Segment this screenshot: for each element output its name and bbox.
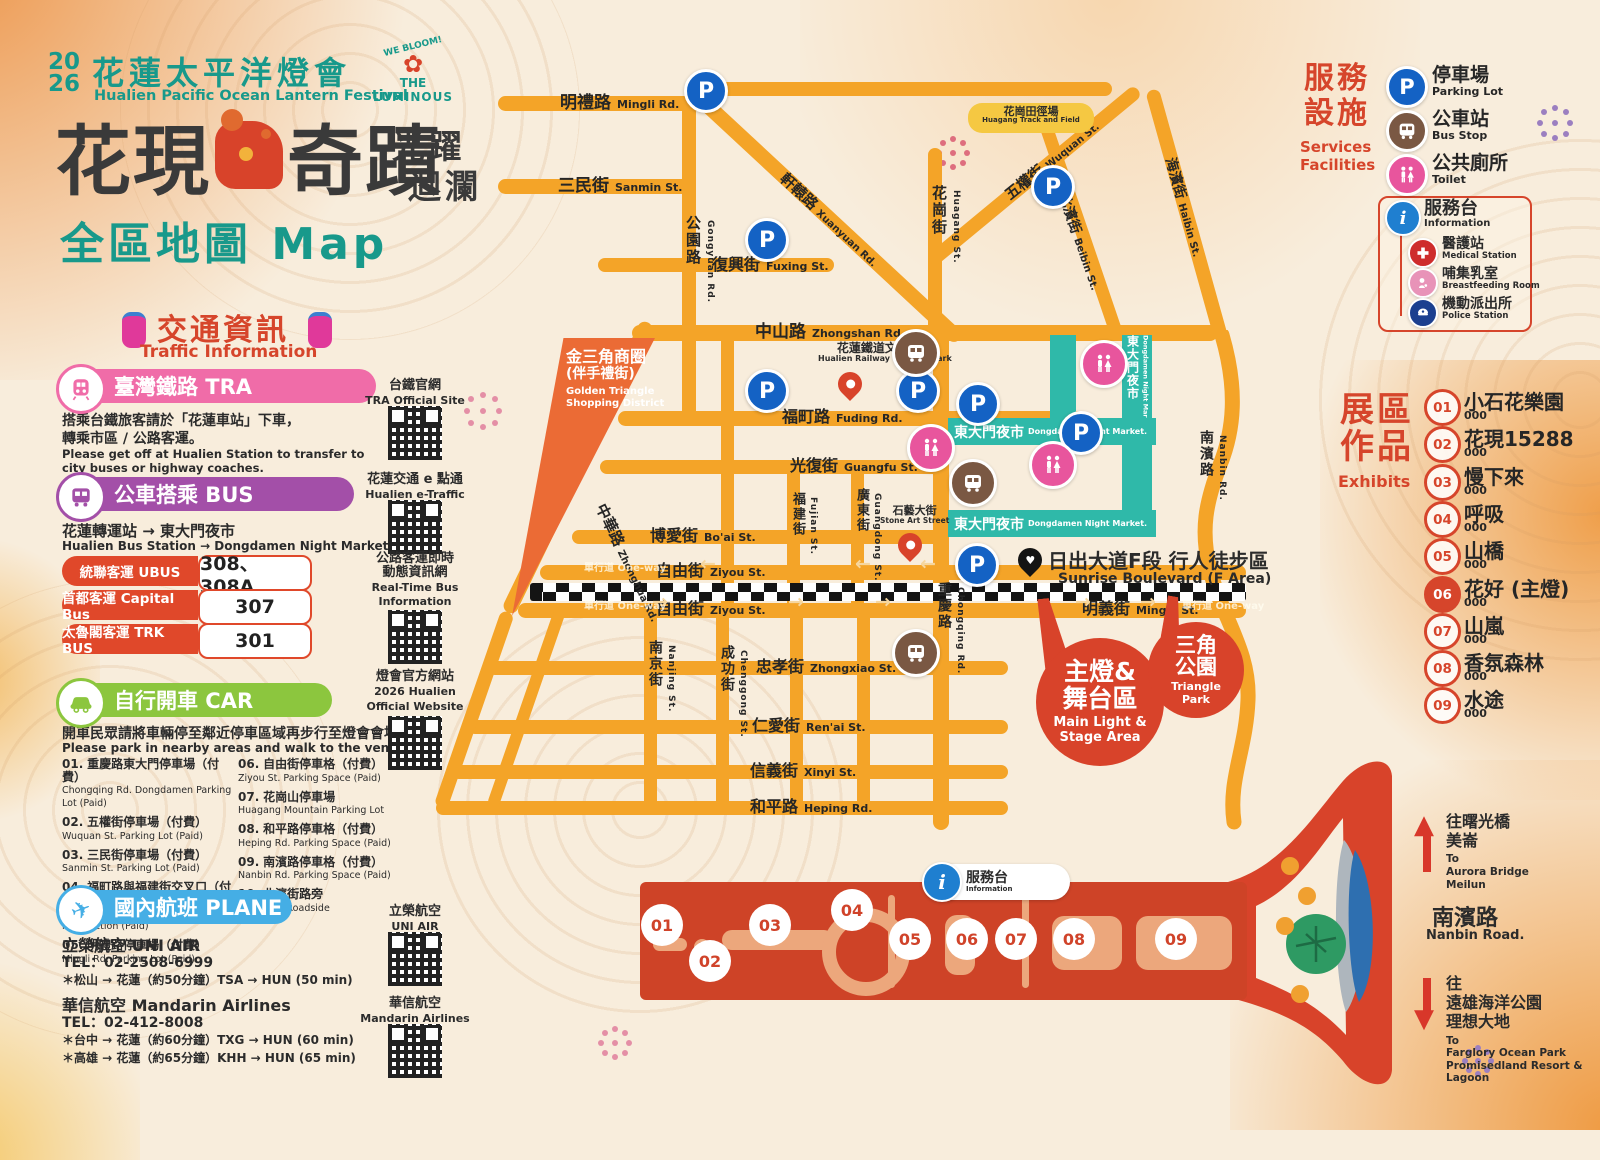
dir-en: To — [1446, 1035, 1600, 1048]
train-icon — [56, 364, 106, 414]
bus-route-row-label: 首都客運 Capital Bus — [62, 590, 198, 620]
info-legend-line — [1400, 232, 1402, 316]
callout-zh2: 舞台區 — [1062, 686, 1137, 712]
dir-zh: 遠雄海洋公園 — [1446, 993, 1600, 1012]
road-label-haibin: 海濱街Haibin St. — [1161, 155, 1208, 259]
parking-zh: 三民街停車場（付費） — [87, 848, 207, 862]
road-label-nanbin: 南濱路Nanbin Rd. — [1196, 430, 1277, 501]
qr-label-zh: 台鐵官網 — [389, 378, 441, 393]
bus-badge: 公車搭乘 BUS — [70, 477, 354, 511]
legend-breastfeeding: 哺集乳室 Breastfeeding Room — [1442, 267, 1540, 291]
qr-label-en2: Information — [379, 595, 452, 608]
legend-en: Toilet — [1432, 173, 1508, 186]
bus-stop-icon — [949, 459, 997, 507]
bus-row-label: 統聯客運 UBUS — [80, 561, 181, 581]
exhibit-number: 04 — [1424, 501, 1461, 538]
road-xinyi — [452, 765, 1008, 779]
bus-badge-label: 公車搭乘 BUS — [114, 479, 254, 509]
firework-burst — [1552, 120, 1558, 126]
parking-zh: 花崗山停車場 — [263, 790, 335, 804]
night-market-zh: 東大門夜市 — [954, 422, 1024, 442]
map-title-en: Map — [271, 219, 388, 270]
parking-num: 09. — [238, 855, 259, 869]
triangle-park-callout: 三角 公園 Triangle Park — [1148, 622, 1244, 718]
parking-num: 07. — [238, 790, 259, 804]
exhibit-number: 03 — [1424, 464, 1461, 501]
airline-route: ＊台中 → 花蓮（約60分鐘）TXG → HUN (60 min) — [62, 1031, 354, 1048]
toilet-icon — [1029, 441, 1077, 489]
en: Ziyou St. — [710, 566, 766, 579]
parking-item: 06. 自由街停車格（付費）Ziyou St. Parking Space (P… — [238, 758, 410, 784]
arrow-down: ▼ — [1414, 1006, 1434, 1032]
legend-en: Bus Stop — [1432, 129, 1489, 142]
dir-en: Promisedland Resort & Lagoon — [1446, 1060, 1600, 1085]
en: Zhongxiao St. — [810, 662, 896, 675]
bus-row-label: 太魯閣客運 TRK BUS — [62, 621, 198, 657]
road-label-zhongshan: 中山路Zhongshan Rd. — [755, 317, 905, 342]
callout-en1: Main Light & — [1053, 715, 1146, 730]
sunrise-zh: 日出大道F段 行人徒步區 — [1048, 545, 1269, 574]
parking-en: Chongqing Rd. Dongdamen Parking Lot (Pai… — [62, 785, 231, 809]
dir-en: Aurora Bridge — [1446, 866, 1529, 879]
parking-icon: P — [1386, 66, 1428, 108]
legend-en: Breastfeeding Room — [1442, 281, 1540, 291]
legend-en: Parking Lot — [1432, 85, 1503, 98]
parking-icon: P — [745, 218, 789, 262]
stone-art-label: 石藝大街 Stone Art Street — [880, 505, 949, 525]
road-label-heping: 和平路Heping Rd. — [750, 793, 872, 817]
area-marker: 03 — [749, 904, 791, 946]
en: Heping Rd. — [804, 802, 872, 815]
night-market-bar: 東大門夜市 Dongdamen Night Market. — [948, 510, 1156, 537]
legend-zh: 機動派出所 — [1442, 297, 1512, 311]
parking-item: 07. 花崗山停車場Huagang Mountain Parking Lot — [238, 791, 410, 817]
road-label-boai: 博愛街Bo'ai St. — [650, 522, 756, 546]
breastfeeding-icon — [1408, 268, 1438, 298]
legend-bus-stop: 公車站 Bus Stop — [1432, 110, 1489, 142]
parking-item: 09. 南濱路停車格（付費）Nanbin Rd. Parking Space (… — [238, 856, 410, 882]
en: Haibin St. — [1176, 202, 1202, 258]
oneway-label: 單行道 One-way — [1182, 597, 1264, 612]
parking-icon: P — [1031, 165, 1075, 209]
oneway-arrow-right: → — [652, 591, 668, 613]
location-pin-icon — [833, 367, 867, 401]
zh: 福町路 — [782, 407, 830, 426]
dir-en: Meilun — [1446, 879, 1529, 892]
zh: 南京街 — [645, 640, 665, 712]
exhibit-number: 02 — [1424, 426, 1461, 463]
parking-item: 03. 三民街停車場（付費）Sanmin St. Parking Lot (Pa… — [62, 849, 234, 875]
road-top — [690, 82, 1112, 96]
oneway-arrow-left: ← — [920, 553, 936, 575]
tra-body-en2: city buses or highway coaches. — [62, 461, 264, 475]
golden-triangle-en1: Golden Triangle — [566, 386, 664, 398]
qr-label-zh: 燈會官方網站 — [376, 669, 454, 684]
bus-icon — [56, 472, 106, 522]
qr-code-mandarin — [388, 1024, 442, 1078]
legend-toilet: 公共廁所 Toilet — [1432, 154, 1508, 186]
callout-en1: Triangle — [1171, 680, 1221, 693]
exhibits-title-en: Exhibits — [1338, 472, 1410, 491]
legend-en: Medical Station — [1442, 251, 1517, 261]
en: Guangfu St. — [844, 461, 918, 474]
en: Bo'ai St. — [704, 531, 756, 544]
area-marker: 02 — [689, 940, 731, 982]
main-light-callout: 主燈& 舞台區 Main Light & Stage Area — [1036, 638, 1164, 766]
year-badge: 20 26 — [48, 52, 80, 96]
services-title-en2: Facilities — [1300, 156, 1375, 174]
en: Zhongshan Rd. — [812, 327, 905, 340]
exhibits-title-zh: 展區 作品 — [1340, 392, 1414, 467]
night-market-zh: 東大門夜市 — [954, 514, 1024, 534]
legend-zh: 停車場 — [1432, 66, 1503, 85]
parking-zh: 和平路停車格（付費） — [263, 822, 383, 836]
zh: 成功街 — [717, 645, 737, 738]
parking-icon: P — [745, 369, 789, 413]
dir-en: To — [1446, 853, 1529, 866]
parking-icon: P — [956, 382, 1000, 426]
legend-zh: 服務台 — [1424, 200, 1490, 218]
road-label-chongqing: 重慶路Chongqing Rd. — [934, 582, 1015, 674]
parking-num: 02. — [62, 815, 83, 829]
nanbin-road-en: Nanbin Road. — [1426, 928, 1524, 943]
pin-dot — [906, 541, 915, 550]
parking-num: 06. — [238, 757, 259, 771]
parking-en: Wuquan St. Parking Lot (Paid) — [62, 831, 203, 842]
area-marker: 08 — [1053, 918, 1095, 960]
road-label-fuding: 福町路Fuding Rd. — [782, 403, 903, 427]
toilet-icon — [1386, 154, 1428, 196]
exhibits-title-zh2: 作品 — [1340, 429, 1414, 466]
legend-medical: 醫護站 Medical Station — [1442, 237, 1517, 261]
en: Sanmin St. — [615, 181, 682, 194]
strip-info-en: Information — [966, 885, 1012, 893]
zh: 南濱路 — [1196, 430, 1216, 501]
zh: 和平路 — [750, 797, 798, 816]
dir-en: Farglory Ocean Park — [1446, 1047, 1600, 1060]
heart-glyph: ♥ — [1025, 554, 1035, 567]
legend-parking: 停車場 Parking Lot — [1432, 66, 1503, 98]
zh: 明禮路 — [560, 93, 611, 113]
parking-en: Sanmin St. Parking Lot (Paid) — [62, 863, 200, 874]
exhibit-sub: 000 — [1464, 596, 1487, 609]
night-market-en: Dongdamen Night Market. — [1028, 519, 1147, 528]
airline-route: ＊松山 → 花蓮（約50分鐘）TSA → HUN (50 min) — [62, 971, 353, 988]
stone-art-en: Stone Art Street — [880, 517, 949, 525]
qr-label: 華信航空Mandarin Airlines — [330, 992, 500, 1026]
legend-zh: 醫護站 — [1442, 237, 1517, 251]
zh: 福建街 — [788, 492, 807, 555]
traffic-title-en: Traffic Information — [140, 342, 317, 362]
info-icon: i — [922, 862, 962, 902]
road-label-xinyi: 信義街Xinyi St. — [750, 757, 856, 781]
oneway-arrow-right: → — [1140, 591, 1156, 613]
parking-num: 03. — [62, 848, 83, 862]
oneway-arrow-left: ← — [855, 553, 871, 575]
qr-code-etraffic — [388, 500, 442, 554]
oneway-arrow-right: → — [875, 591, 891, 613]
area-marker: 01 — [641, 904, 683, 946]
firework-burst — [480, 408, 486, 414]
car-note-en: Please park in nearby areas and walk to … — [62, 741, 410, 755]
parking-zh: 自由街停車格（付費） — [263, 757, 383, 771]
logo-the: THE — [368, 76, 458, 90]
bus-stop-icon — [1386, 110, 1428, 152]
info-icon: i — [1385, 200, 1421, 236]
airline-route: ＊高雄 → 花蓮（約65分鐘）KHH → HUN (65 min) — [62, 1049, 356, 1066]
services-title-zh1: 服務 — [1304, 62, 1370, 97]
oneway-arrow-right: → — [788, 591, 804, 613]
dir-zh: 美崙 — [1446, 831, 1529, 850]
strip-info-zh: 服務台 — [966, 871, 1012, 885]
en: One-way — [617, 563, 666, 574]
year-bottom: 26 — [48, 74, 80, 96]
qr-label-zh: 花蓮交通 e 點通 — [367, 472, 463, 487]
firework-burst — [612, 1040, 618, 1046]
oneway-arrow-left: ← — [700, 553, 716, 575]
car-badge: 自行開車 CAR — [70, 683, 332, 717]
qr-label: 花蓮交通 e 點通Hualien e-Traffic — [330, 468, 500, 502]
qr-code-official — [388, 716, 442, 770]
services-title-zh: 服務 設施 — [1304, 62, 1370, 131]
qr-code-bus-info — [388, 610, 442, 664]
parking-num: 08. — [238, 822, 259, 836]
en: Beibin St. — [1071, 237, 1099, 292]
parking-zh: 五權街停車場（付費） — [87, 815, 207, 829]
slogan-left: 花現 — [55, 100, 211, 210]
en: Ren'ai St. — [806, 721, 866, 734]
area-marker: 07 — [995, 918, 1037, 960]
exhibit-number-main: 06 — [1424, 576, 1461, 613]
parking-en: Ziyou St. Parking Space (Paid) — [238, 773, 381, 784]
car-icon — [56, 678, 106, 728]
info-glyph: i — [938, 870, 946, 894]
sunrise-en: Sunrise Boulevard (F Area) — [1058, 571, 1271, 587]
bus-route-zh: 花蓮轉運站 → 東大門夜市 — [62, 520, 235, 541]
en: Huagang St. — [951, 190, 961, 264]
golden-triangle-zh1: 金三角商圈 — [566, 348, 664, 366]
bus-row-value: 301 — [235, 630, 275, 652]
parking-en: Heping Rd. Parking Space (Paid) — [238, 838, 391, 849]
tra-body-en1: Please get off at Hualien Station to tra… — [62, 447, 364, 461]
zh: 博愛街 — [650, 526, 698, 545]
direction-aurora: 往曙光橋 美崙 To Aurora Bridge Meilun — [1446, 812, 1529, 891]
callout-zh1: 三角 — [1175, 634, 1217, 656]
toilet-icon — [1080, 340, 1128, 388]
firework-burst — [950, 150, 956, 156]
qr-code-tra — [388, 406, 442, 460]
oneway-arrow-right: → — [1075, 591, 1091, 613]
en: Fuding Rd. — [836, 412, 903, 425]
callout-zh1: 主燈& — [1064, 659, 1136, 685]
zh: 單行道 — [1182, 601, 1212, 612]
golden-triangle-zh2: (伴手禮街) — [566, 366, 664, 382]
qr-label-zh: 公路客運即時 — [376, 551, 454, 566]
en: Fuxing St. — [766, 260, 829, 273]
zh: 花崗街 — [929, 185, 950, 264]
qr-label: 台鐵官網TRA Official Site — [330, 374, 500, 408]
tra-body-zh1: 搭乘台鐵旅客請於「花蓮車站」下車， — [62, 410, 300, 430]
parking-en: Huagang Mountain Parking Lot — [238, 805, 384, 816]
coastal-park-art — [1228, 748, 1413, 1098]
en: Nanbin Rd. — [1217, 435, 1227, 501]
qr-label: 燈會官方網站2026 HualienOfficial Website — [330, 670, 500, 715]
legend-zh: 哺集乳室 — [1442, 267, 1540, 281]
plane-icon: ✈ — [56, 885, 106, 935]
golden-triangle-label: 金三角商圈 (伴手禮街) Golden Triangle Shopping Di… — [566, 348, 664, 409]
oneway-label: 單行道 One-way — [584, 559, 666, 574]
exhibit-number: 07 — [1424, 613, 1461, 650]
qr-code-uniair — [388, 932, 442, 986]
police-icon — [1408, 298, 1438, 328]
bus-route-row-label: 統聯客運 UBUS — [62, 556, 198, 586]
horse-flower-dot — [221, 109, 243, 131]
parking-zh: 重慶路東大門停車場（付費） — [62, 757, 219, 784]
legend-zh: 公車站 — [1432, 110, 1489, 129]
parking-en: Nanbin Rd. Parking Space (Paid) — [238, 870, 391, 881]
zh: 公園路 — [683, 215, 704, 303]
legend-en: Police Station — [1442, 311, 1512, 321]
main-slogan: 花現 奇蹟 — [55, 100, 443, 210]
exhibit-sub: 000 — [1464, 521, 1487, 534]
airline-tel: TEL：02-2508-6999 — [62, 952, 213, 972]
dir-zh: 往曙光橋 — [1446, 812, 1529, 831]
road-label-sanmin: 三民街Sanmin St. — [558, 171, 682, 196]
road-grid-v — [857, 603, 870, 810]
qr-label-en: Real-Time Bus — [372, 581, 459, 594]
exhibit-sub: 000 — [1464, 670, 1487, 683]
exhibit-sub: 000 — [1464, 484, 1487, 497]
zh: 三民街 — [558, 176, 609, 196]
track-field-en: Huagang Track and Field — [968, 117, 1094, 124]
qr-label-zh: 立榮航空 — [389, 904, 441, 919]
info-glyph: i — [1400, 208, 1407, 229]
services-title-en1: Services — [1300, 138, 1375, 156]
legend-zh: 公共廁所 — [1432, 154, 1508, 173]
callout-zh2: 公園 — [1175, 656, 1217, 678]
callout-en2: Stage Area — [1059, 730, 1140, 745]
exhibit-number: 09 — [1424, 687, 1461, 724]
en: Mingli Rd. — [617, 98, 679, 111]
legend-police: 機動派出所 Police Station — [1442, 297, 1512, 321]
parking-item: 08. 和平路停車格（付費）Heping Rd. Parking Space (… — [238, 823, 410, 849]
plane-glyph: ✈ — [67, 893, 95, 926]
bus-row-value: 307 — [235, 596, 275, 618]
area-marker: 09 — [1155, 918, 1197, 960]
slogan-side-2: 迴瀾 — [408, 160, 482, 208]
arrow-up-shaft — [1423, 836, 1431, 872]
bus-route-row-value: 301 — [198, 623, 312, 659]
bus-stop-icon — [892, 629, 940, 677]
area-marker: 06 — [946, 918, 988, 960]
map-title: 全區地圖 Map — [60, 208, 388, 272]
dir-zh: 理想大地 — [1446, 1012, 1600, 1031]
exhibit-sub: 000 — [1464, 446, 1487, 459]
exhibit-sub: 000 — [1464, 558, 1487, 571]
qr-label: 立榮航空UNI AIR — [330, 900, 500, 934]
pin-dot — [846, 380, 855, 389]
car-badge-label: 自行開車 CAR — [114, 685, 253, 715]
en: Ziyou St. — [710, 604, 766, 617]
exhibit-sub: 000 — [1464, 707, 1487, 720]
parking-item: 02. 五權街停車場（付費）Wuquan St. Parking Lot (Pa… — [62, 816, 234, 842]
road-label-huagang: 花崗街Huagang St. — [929, 185, 1013, 264]
road-label-mingli: 明禮路Mingli Rd. — [560, 88, 679, 113]
exhibit-number: 08 — [1424, 650, 1461, 687]
exhibits-title-zh1: 展區 — [1340, 392, 1414, 429]
medical-icon — [1408, 238, 1438, 268]
toilet-icon — [907, 424, 955, 472]
night-market-stub — [1050, 335, 1076, 420]
exhibit-number: 01 — [1424, 389, 1461, 426]
en: Fujian St. — [808, 497, 818, 555]
legend-information: 服務台 Information — [1424, 200, 1490, 229]
qr-label-en: 2026 Hualien — [374, 685, 456, 698]
parking-icon: P — [684, 69, 728, 113]
zh: 海濱街 — [1162, 156, 1189, 201]
zh: 中山路 — [755, 322, 806, 342]
qr-label-en2: Official Website — [366, 700, 463, 713]
bus-row-label: 首都客運 Capital Bus — [62, 587, 198, 623]
en: Xinyi St. — [804, 766, 856, 779]
exhibit-sub: 000 — [1464, 633, 1487, 646]
map-title-zh: 全區地圖 — [60, 219, 252, 270]
road-label-chenggong: 成功街Chenggong St. — [717, 645, 798, 738]
track-field-pill: 花崗田徑場 Huagang Track and Field — [968, 103, 1094, 133]
en: Nanjing St. — [666, 645, 676, 712]
plane-badge-label: 國內航班 PLANE — [114, 892, 282, 922]
airline-tel: TEL：02-412-8008 — [62, 1012, 203, 1032]
area-marker: 04 — [831, 889, 873, 931]
qr-label: 公路客運即時動態資訊網Real-Time BusInformation — [330, 552, 500, 609]
services-title-zh2: 設施 — [1304, 97, 1370, 132]
bus-route-row-value: 308、308A — [198, 555, 312, 591]
en: Chongqing Rd. — [955, 587, 965, 674]
qr-label-zh2: 動態資訊網 — [382, 565, 447, 580]
legend-en: Information — [1424, 218, 1490, 229]
parking-item: 01. 重慶路東大門停車場（付費）Chongqing Rd. Dongdamen… — [62, 758, 234, 809]
qr-label-zh: 華信航空 — [389, 996, 441, 1011]
direction-farglory: 往 遠雄海洋公園 理想大地 To Farglory Ocean Park Pro… — [1446, 974, 1600, 1085]
horse-lantern-art — [215, 121, 283, 189]
bus-route-row-label: 太魯閣客運 TRK BUS — [62, 624, 198, 654]
tra-badge-label: 臺灣鐵路 TRA — [114, 371, 252, 401]
road-label-ziyou-lower: 自由街Ziyou St. — [656, 595, 766, 619]
zh: 光復街 — [790, 456, 838, 475]
road-label-nanjing: 南京街Nanjing St. — [645, 640, 726, 712]
car-note-zh: 開車民眾請將車輛停至鄰近停車區域再步行至燈會會場 — [62, 723, 398, 743]
bus-stop-icon — [892, 329, 940, 377]
zh: 信義街 — [750, 761, 798, 780]
festival-map-poster: { "colors": { "background": "#F8EDDC", "… — [0, 0, 1600, 1120]
tra-body-zh2: 轉乘市區 / 公路客運。 — [62, 428, 203, 448]
zh: 軒轅路 — [776, 169, 821, 213]
services-title-en: Services Facilities — [1300, 138, 1375, 174]
exhibit-sub: 000 — [1464, 409, 1487, 422]
zh: 單行道 — [584, 601, 614, 612]
bus-route-row-value: 307 — [198, 589, 312, 625]
en: Chenggong St. — [738, 650, 748, 738]
en: One-way — [1215, 601, 1264, 612]
area-marker: 05 — [889, 918, 931, 960]
zh: 單行道 — [584, 563, 614, 574]
dir-zh: 往 — [1446, 974, 1600, 993]
parking-zh: 南濱路停車格（付費） — [263, 855, 383, 869]
exhibit-number: 05 — [1424, 538, 1461, 575]
golden-triangle-en2: Shopping District — [566, 398, 664, 410]
parking-icon: P — [955, 543, 999, 587]
callout-en2: Park — [1182, 693, 1210, 706]
